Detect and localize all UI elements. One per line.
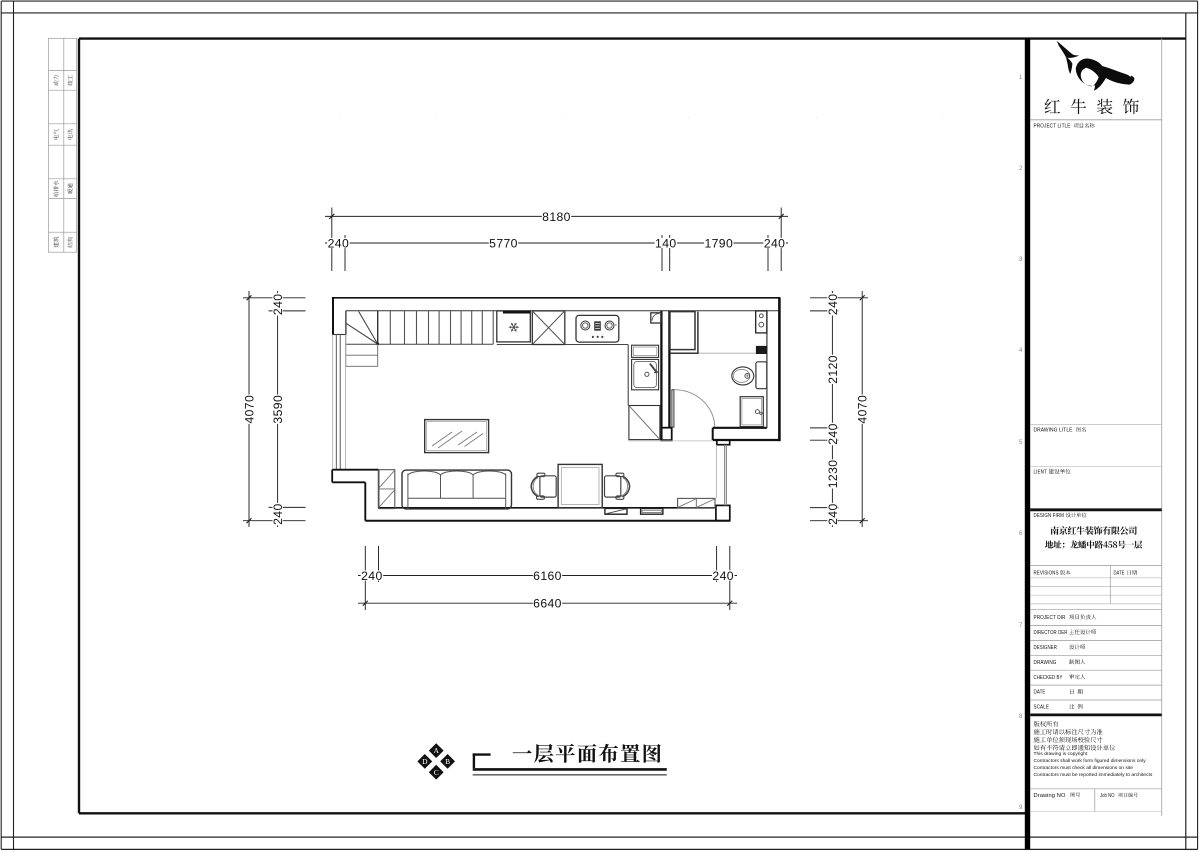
svg-text:4070: 4070 — [242, 395, 256, 424]
svg-text:2120: 2120 — [826, 355, 840, 384]
svg-text:5770: 5770 — [489, 236, 518, 250]
svg-text:240: 240 — [826, 423, 840, 445]
svg-text:DATE: DATE — [1034, 690, 1046, 696]
svg-text:REVISIONS: REVISIONS — [1034, 571, 1059, 577]
svg-text:240: 240 — [826, 294, 840, 316]
svg-text:DIRECTOR DER: DIRECTOR DER — [1034, 630, 1068, 636]
svg-text:DESIGN FIRM: DESIGN FIRM — [1034, 513, 1065, 519]
svg-text:240: 240 — [328, 236, 350, 250]
svg-text:DESIGNER: DESIGNER — [1034, 645, 1058, 651]
svg-text:240: 240 — [271, 503, 285, 525]
svg-text:SCALE: SCALE — [1034, 705, 1050, 711]
svg-text:D: D — [422, 757, 428, 766]
svg-text:240: 240 — [764, 236, 786, 250]
svg-text:LIENT: LIENT — [1034, 470, 1048, 476]
svg-text:A: A — [433, 746, 439, 755]
svg-text:Contractors must be reported i: Contractors must be reported immediately… — [1034, 772, 1153, 778]
svg-text:1790: 1790 — [704, 236, 733, 250]
svg-text:240: 240 — [826, 503, 840, 525]
svg-text:Job NO: Job NO — [1100, 793, 1115, 799]
svg-text:140: 140 — [655, 236, 677, 250]
svg-text:B: B — [445, 757, 450, 766]
svg-text:DRAWING: DRAWING — [1034, 660, 1057, 666]
svg-text:PROJECT LITLE: PROJECT LITLE — [1034, 124, 1071, 130]
svg-text:Contractors shall work form fi: Contractors shall work form figured dime… — [1034, 758, 1147, 764]
svg-text:Drawing NO: Drawing NO — [1034, 793, 1066, 799]
svg-text:This drawing is copyright: This drawing is copyright — [1034, 751, 1088, 757]
svg-text:8180: 8180 — [542, 210, 571, 224]
svg-text:1230: 1230 — [826, 460, 840, 489]
svg-text:3590: 3590 — [271, 395, 285, 424]
svg-text:DATE: DATE — [1114, 571, 1125, 577]
svg-text:Contractors must check all dim: Contractors must check all dimensions on… — [1034, 765, 1134, 771]
svg-text:4070: 4070 — [856, 395, 870, 424]
svg-text:DRAWING LITLE: DRAWING LITLE — [1034, 428, 1073, 434]
svg-text:PROJECT DIR: PROJECT DIR — [1034, 615, 1066, 621]
svg-text:240: 240 — [712, 569, 734, 583]
svg-text:C: C — [434, 768, 439, 777]
svg-text:CHECKED BY: CHECKED BY — [1034, 675, 1063, 681]
svg-text:240: 240 — [271, 294, 285, 316]
svg-text:240: 240 — [361, 569, 383, 583]
svg-text:6160: 6160 — [533, 569, 562, 583]
svg-text:6640: 6640 — [533, 597, 562, 611]
